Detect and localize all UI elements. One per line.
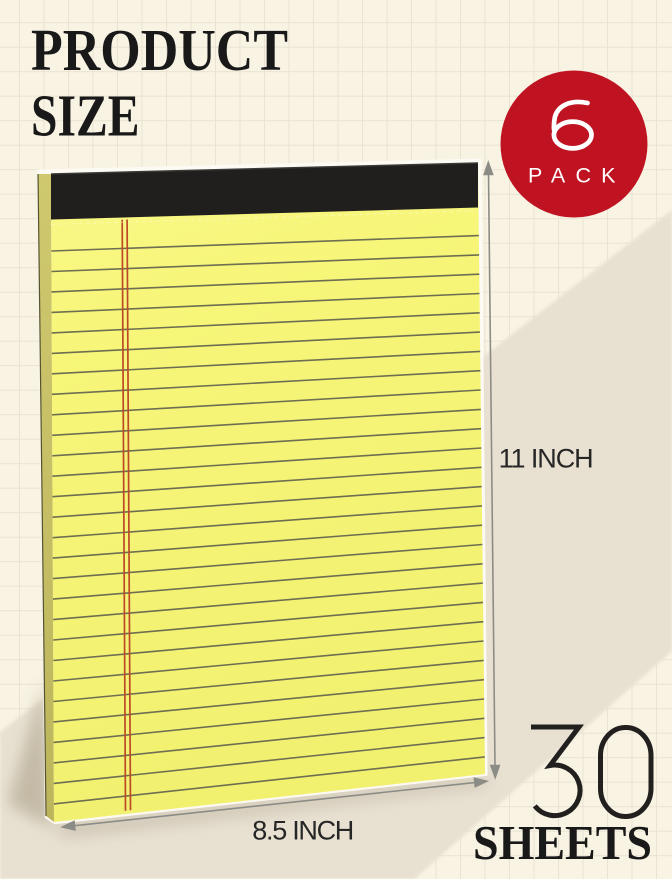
svg-text:PRODUCT: PRODUCT bbox=[31, 17, 288, 83]
svg-text:SHEETS: SHEETS bbox=[473, 815, 652, 870]
svg-text:11 INCH: 11 INCH bbox=[499, 444, 594, 474]
svg-text:8.5 INCH: 8.5 INCH bbox=[252, 815, 354, 845]
svg-text:SIZE: SIZE bbox=[31, 82, 140, 148]
